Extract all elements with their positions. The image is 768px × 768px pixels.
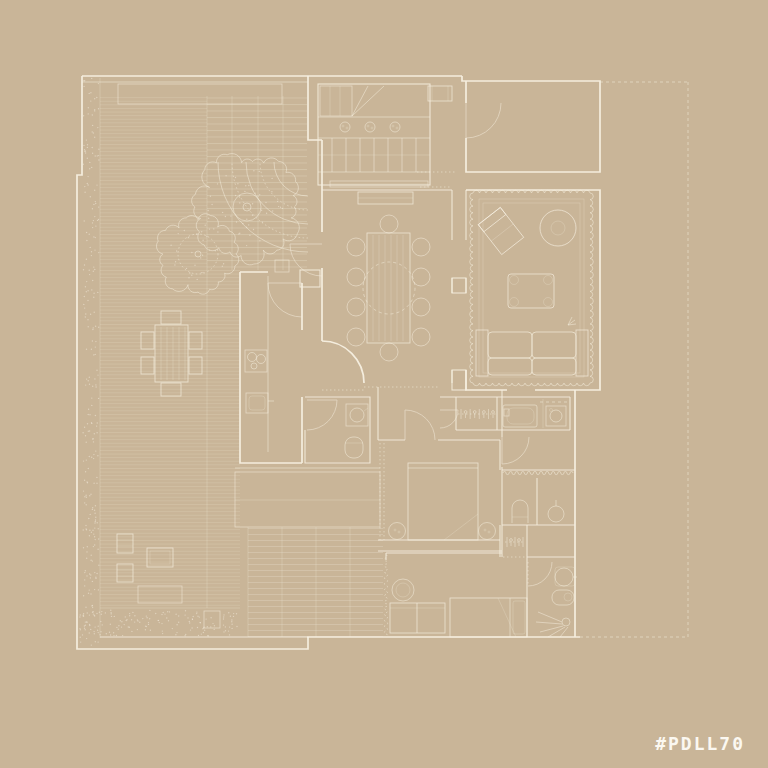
property-dashed-line: [580, 82, 688, 637]
wardrobe-corridor: [458, 409, 496, 419]
staircase: [318, 84, 430, 187]
floor-plan-drawing: [0, 0, 768, 768]
bathroom-shower: [536, 567, 577, 637]
coffee-table: [508, 274, 554, 308]
doors: [268, 103, 552, 586]
laundry-bathroom: [503, 402, 570, 427]
dressing-wardrobe: [503, 537, 527, 557]
shower-spray: [536, 612, 570, 637]
shower-rooms: [503, 471, 573, 523]
bedroom1-door: [405, 410, 435, 440]
powder-room: [345, 404, 368, 458]
living-room: [470, 190, 594, 385]
bathroom3-door: [528, 562, 552, 586]
powder-door: [307, 400, 337, 430]
loveseat: [390, 603, 445, 633]
armchair: [478, 207, 523, 254]
kitchen: [245, 276, 274, 452]
garage-door: [466, 103, 501, 138]
plant-sprig: [568, 317, 576, 325]
bath-lobby-door: [502, 437, 529, 464]
bedroom-2: [384, 555, 527, 637]
kitchen-door: [268, 283, 302, 317]
courtyard-paving: [248, 527, 383, 637]
wardrobe-door: [440, 410, 458, 428]
round-chair: [392, 579, 414, 601]
corridor: [322, 387, 440, 390]
deck-band: [235, 468, 380, 527]
watermark: #PDLL70: [655, 733, 745, 754]
dining-room: [347, 192, 430, 361]
floor-plan-canvas: #PDLL70: [0, 0, 768, 768]
bedroom-1: [380, 443, 496, 540]
sofa: [476, 330, 588, 376]
dining-chairs: [347, 215, 430, 361]
round-side-table: [540, 210, 576, 246]
